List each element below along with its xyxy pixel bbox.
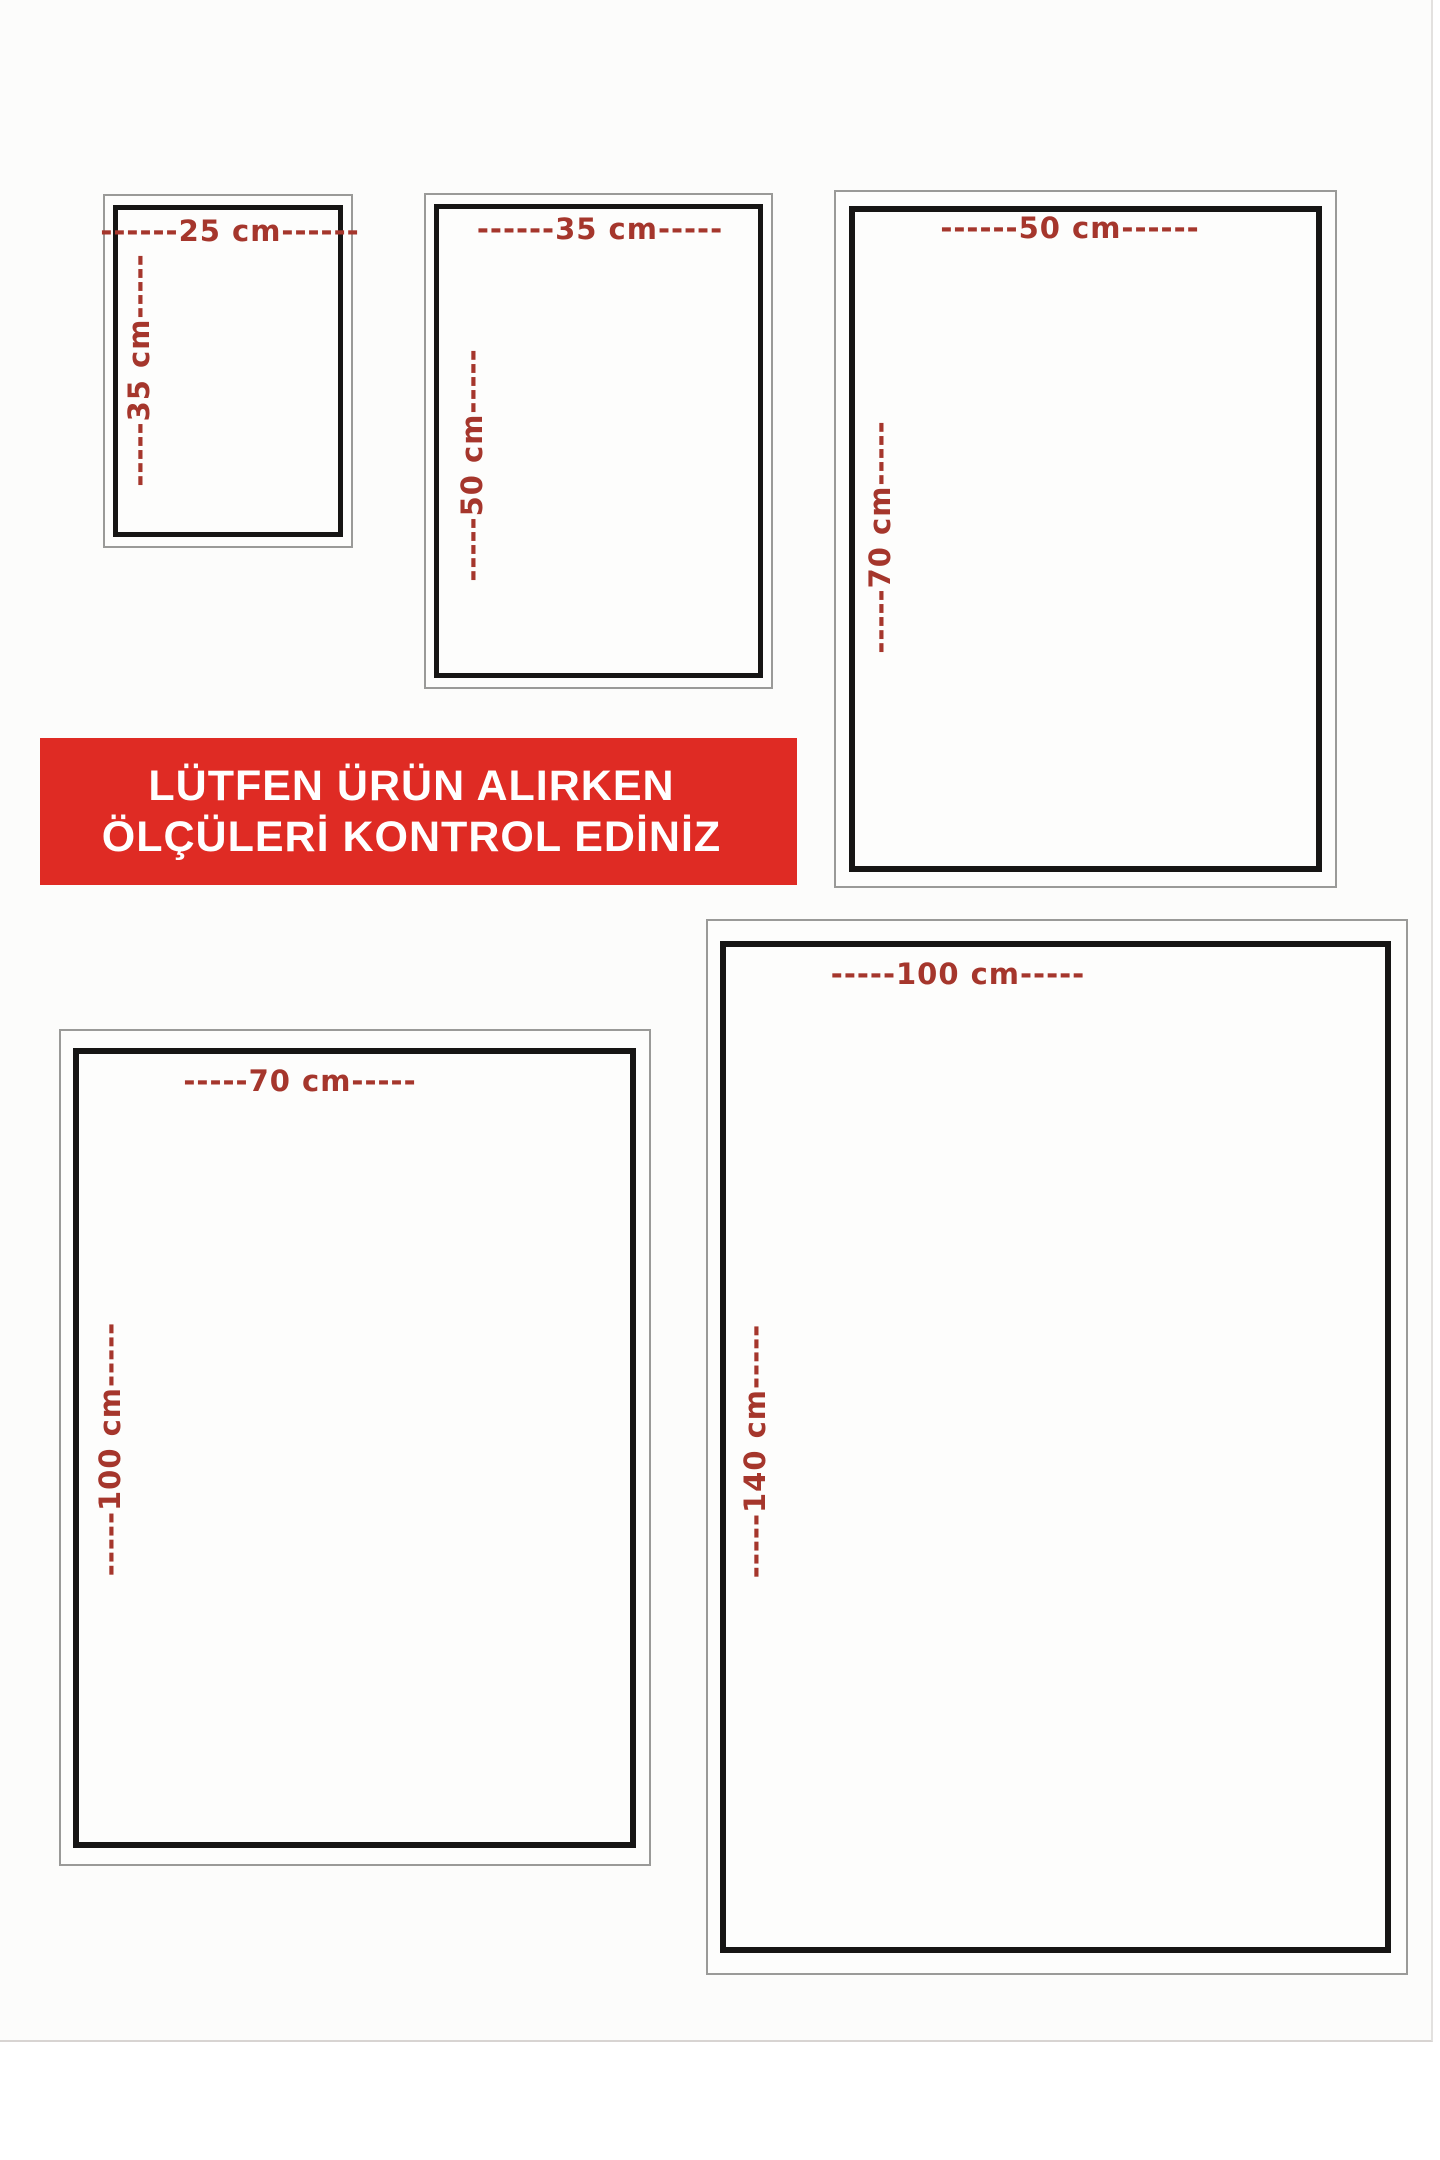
- warning-banner-line-2: ÖLÇÜLERİ KONTROL EDİNİZ: [102, 812, 721, 863]
- height-dimension-label-50cm: -----50 cm-----: [455, 348, 489, 581]
- warning-banner-line-1: LÜTFEN ÜRÜN ALIRKEN: [148, 761, 674, 812]
- width-dimension-label-50cm: ------50 cm------: [940, 211, 1199, 245]
- height-dimension-label-35cm: -----35 cm-----: [122, 253, 156, 486]
- size-box-50x70: ------50 cm------ -----70 cm-----: [834, 190, 1337, 888]
- width-dimension-label-35cm: ------35 cm-----: [477, 212, 723, 246]
- size-box-70x100-frame: [73, 1048, 636, 1848]
- width-dimension-label-100cm: -----100 cm-----: [831, 957, 1085, 991]
- height-dimension-label-100cm: -----100 cm-----: [93, 1322, 127, 1576]
- size-box-50x70-frame: [849, 206, 1322, 872]
- size-box-25x35: ------25 cm------ -----35 cm-----: [103, 194, 353, 548]
- size-box-100x140: -----100 cm----- -----140 cm-----: [706, 919, 1408, 1975]
- width-dimension-label-70cm: -----70 cm-----: [183, 1064, 416, 1098]
- size-box-70x100: -----70 cm----- -----100 cm-----: [59, 1029, 651, 1866]
- height-dimension-label-70cm: -----70 cm-----: [863, 420, 897, 653]
- height-dimension-label-140cm: -----140 cm-----: [738, 1324, 772, 1578]
- size-box-35x50: ------35 cm----- -----50 cm-----: [424, 193, 773, 689]
- size-guide-image: ------25 cm------ -----35 cm----- ------…: [0, 0, 1440, 2160]
- width-dimension-label-25cm: ------25 cm------: [100, 214, 359, 248]
- size-box-100x140-frame: [720, 941, 1391, 1953]
- warning-banner: LÜTFEN ÜRÜN ALIRKEN ÖLÇÜLERİ KONTROL EDİ…: [40, 738, 797, 885]
